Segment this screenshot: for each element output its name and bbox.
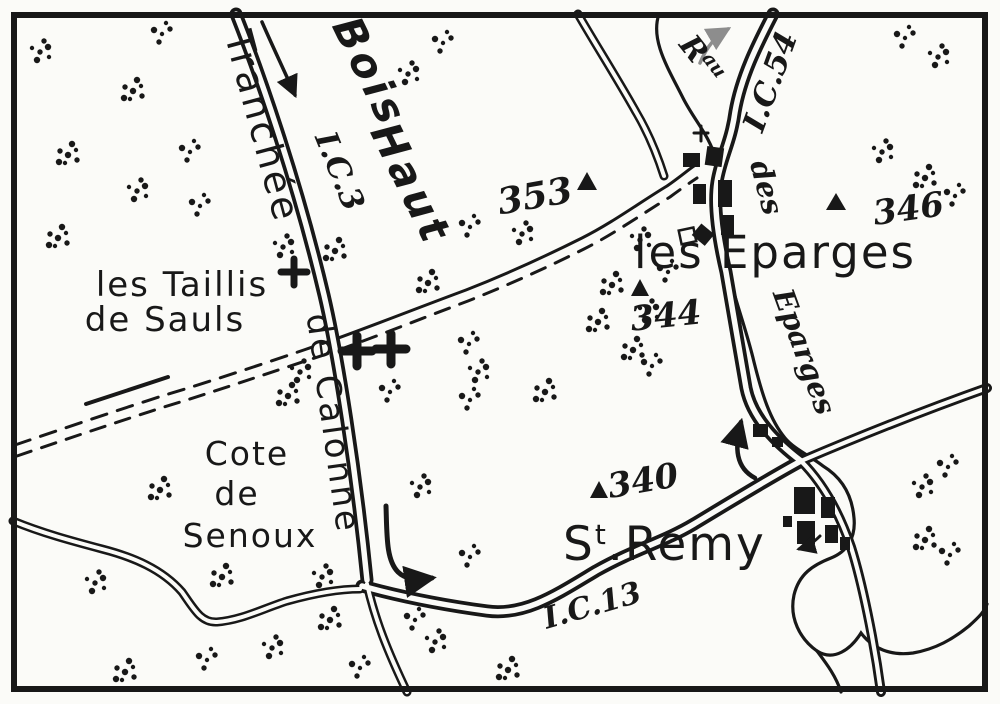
tree-dot [955,547,960,552]
tree-dot [601,278,606,283]
tree-dot [209,647,213,651]
tree-dot [436,628,441,633]
tree-dot [472,387,476,391]
tree-dot [540,398,544,402]
tree-dot [273,241,277,245]
label-344: 344 [628,292,703,339]
tree-dot [922,175,928,181]
tree-dot [442,645,446,649]
tree-dot [409,60,414,65]
tree-dot [134,188,139,193]
tree-dot [604,324,609,329]
tree-dot [607,291,611,295]
tree-dot [409,625,414,630]
tree-dot [471,331,475,335]
tree-dot [228,579,233,584]
tree-dot [134,77,140,83]
tree-dot [318,624,324,630]
tree-dot [448,35,453,40]
tree-dot [942,472,947,477]
tree-dot [646,371,651,376]
tree-dot [219,574,225,580]
tree-dot [113,676,119,682]
tree-dot [879,149,884,154]
tree-dot [609,282,615,288]
tree-dot [534,385,539,390]
tree-dot [127,185,131,189]
tree-dot [932,62,938,68]
tree-dot [613,271,619,277]
st-remy-sup-t: t [595,518,608,551]
tree-dot [139,93,144,98]
tree-dot [341,253,346,258]
tree-dot [100,575,106,581]
tree-dot [336,237,342,243]
tree-dot [621,354,627,360]
tree-dot [928,51,932,55]
tree-dot [546,378,552,384]
st-remy-s: S [563,517,595,572]
tree-dot [423,289,427,293]
tree-dot [654,353,658,357]
tree-dot [952,542,956,546]
paper-background [0,0,1000,704]
tree-dot [294,398,299,403]
tree-dot [74,157,79,162]
tree-dot [284,233,289,238]
tree-dot [953,194,957,198]
tree-dot [69,141,75,147]
tree-dot [467,342,471,346]
tree-dot [907,25,911,29]
tree-dot [144,194,148,198]
tree-dot [432,639,437,644]
tree-dot [950,454,954,458]
tree-dot [948,553,952,557]
tree-dot [913,544,919,550]
tree-dot [937,460,943,466]
tree-dot [122,84,127,89]
tree-dot [131,665,135,669]
tree-dot [102,586,106,590]
tree-dot [205,198,210,203]
tree-dot [354,673,359,678]
tree-dot [600,289,606,295]
tree-dot [472,214,476,218]
tree-dot [496,674,502,680]
tree-dot [316,582,322,588]
tree-dot [55,235,61,241]
tree-dot [47,55,51,59]
tree-dot [131,674,136,679]
tree-dot [463,349,468,354]
tree-dot [413,618,417,622]
tree-dot [388,390,392,394]
tree-dot [472,544,476,548]
tree-dot [926,526,932,532]
tree-dot [126,658,132,664]
tree-dot [618,287,623,292]
tree-dot [57,148,62,153]
tree-dot [519,231,524,236]
tree-dot [63,161,67,165]
tree-dot [273,634,278,639]
tree-dot [139,84,143,88]
label-les-eparges: les Eparges [634,226,916,279]
tree-dot [459,550,465,556]
tree-dot [887,144,893,150]
tree-dot [657,358,662,363]
tree-dot [395,384,400,389]
tree-dot [327,617,333,623]
tree-dot [445,30,449,34]
tree-dot [114,665,119,670]
tree-dot [288,239,294,245]
tree-dot [410,481,414,485]
tree-dot [279,651,283,655]
tree-dot [201,665,206,670]
tree-dot [166,483,170,487]
st-remy-name: Remy [625,517,766,572]
tree-dot [167,26,172,31]
tree-dot [628,356,632,360]
tree-dot [497,663,502,668]
tree-dot [464,405,469,410]
tree-dot [379,385,385,391]
tree-dot [384,397,389,402]
tree-dot [512,228,516,232]
eparges-map: Tranchée de Calonne I.C.3 Bois Haut les … [0,0,1000,704]
tree-dot [92,580,97,585]
tree-dot [312,571,316,575]
tree-dot [325,626,329,630]
tree-dot [429,269,435,275]
tree-dot [914,533,919,538]
tree-dot [179,145,185,151]
tree-dot [155,496,159,500]
tree-dot [923,473,928,478]
map-page: Tranchée de Calonne I.C.3 Bois Haut les … [0,0,1000,704]
tree-dot [529,237,533,241]
tree-dot [289,382,295,388]
tree-dot [262,642,266,646]
tree-dot [164,21,168,25]
tree-dot [894,31,900,37]
tree-dot [960,188,965,193]
tree-dot [53,244,57,248]
tree-dot [120,678,124,682]
tree-dot [416,287,422,293]
tree-dot [336,622,341,627]
tree-dot [149,483,154,488]
tree-dot [297,369,302,374]
tree-dot [417,607,421,611]
tree-dot [639,343,643,347]
tree-dot [294,377,300,383]
tree-dot [472,377,478,383]
tree-dot [74,148,78,152]
tree-dot [587,315,592,320]
tree-dot [914,171,919,176]
tree-dot [280,244,285,249]
tree-dot [277,640,283,646]
tree-dot [483,364,489,370]
tree-dot [622,343,627,348]
tree-dot [432,36,438,42]
tree-dot [920,546,924,550]
tree-dot [468,398,472,402]
tree-dot [276,400,282,406]
tree-dot [37,49,42,54]
tree-dot [425,636,429,640]
tree-dot [593,328,597,332]
tree-dot [294,389,298,393]
tree-dot [939,43,944,48]
tree-dot [413,66,419,72]
tree-dot [128,97,132,101]
tree-dot [434,276,438,280]
tree-dot [85,577,89,581]
tree-dot [65,152,71,158]
tree-dot [505,667,511,673]
tree-dot [142,183,148,189]
tree-dot [899,43,904,48]
tree-dot [883,138,888,143]
tree-dot [184,157,189,162]
tree-dot [944,560,949,565]
tree-dot [468,555,472,559]
tree-dot [945,60,949,64]
tree-dot [514,672,519,677]
tree-dot [157,487,163,493]
tree-dot [122,669,128,675]
tree-dot [912,481,916,485]
tree-dot [160,32,164,36]
tree-dot [551,385,555,389]
tree-dot [931,533,935,537]
tree-dot [195,144,200,149]
tree-dot [595,319,601,325]
tree-dot [910,30,915,35]
label-les-taillis: les Taillis [96,265,268,305]
tree-dot [551,394,556,399]
tree-dot [533,396,539,402]
tree-dot [464,232,469,237]
tree-dot [336,613,340,617]
tree-dot [277,389,282,394]
tree-dot [927,479,933,485]
tree-dot [949,201,954,206]
tree-dot [414,492,420,498]
tree-dot [148,494,154,500]
tree-dot [415,77,419,81]
tree-dot [650,364,654,368]
tree-dot [903,36,907,40]
tree-dot [41,38,46,43]
tree-dot [946,465,950,469]
tree-dot [64,240,69,245]
tree-dot [324,244,329,249]
tree-dot [151,27,157,33]
tree-dot [332,248,338,254]
tree-dot [138,177,143,182]
tree-dot [475,219,480,224]
tree-dot [468,225,472,229]
tree-dot [47,231,52,236]
tree-dot [425,479,431,485]
tree-dot [358,666,362,670]
tree-dot [459,393,465,399]
label-de: de [214,474,259,513]
tree-dot [45,44,51,50]
tree-dot [156,39,161,44]
tree-dot [194,211,199,216]
tree-dot [916,492,922,498]
tree-dot [290,250,294,254]
tree-dot [56,159,62,165]
tree-dot [458,337,464,343]
tree-dot [931,171,935,175]
tree-dot [96,569,101,574]
tree-dot [919,484,924,489]
label-senoux: Senoux [183,516,318,555]
tree-dot [437,48,442,53]
tree-dot [630,347,636,353]
tree-dot [202,193,206,197]
tree-dot [944,189,950,195]
tree-dot [290,366,294,370]
tree-dot [349,661,355,667]
tree-dot [586,326,592,332]
tree-dot [365,660,370,665]
tree-dot [266,653,272,659]
tree-dot [926,164,932,170]
tree-dot [953,459,958,464]
tree-dot [503,676,507,680]
tree-dot [434,285,439,290]
tree-dot [475,369,480,374]
tree-dot [943,49,949,55]
tree-dot [166,492,171,497]
tree-dot [210,581,216,587]
tree-dot [59,224,65,230]
tree-dot [509,656,515,662]
tree-dot [130,88,136,94]
tree-dot [523,220,528,225]
tree-dot [323,563,328,568]
tree-dot [475,549,480,554]
tree-dot [420,612,425,617]
tree-dot [405,71,410,76]
tree-dot [223,563,229,569]
tree-dot [34,57,40,63]
tree-dot [527,226,533,232]
tree-dot [889,155,893,159]
label-de-sauls: de Sauls [85,300,245,340]
tree-dot [417,276,422,281]
tree-dot [327,569,333,575]
tree-dot [319,574,324,579]
tree-dot [427,490,431,494]
tree-dot [468,366,472,370]
st-remy-dot: . [608,517,625,572]
tree-dot [417,484,422,489]
tree-dot [441,41,445,45]
tree-dot [198,204,202,208]
tree-dot [604,315,608,319]
tree-dot [542,389,548,395]
tree-dot [516,239,522,245]
tree-dot [404,613,410,619]
tree-dot [421,473,426,478]
tree-dot [599,308,605,314]
tree-dot [329,580,333,584]
tree-dot [64,231,68,235]
tree-dot [939,548,945,554]
tree-dot [876,157,882,163]
tree-dot [475,392,480,397]
tree-dot [89,588,95,594]
tree-dot [639,352,644,357]
tree-dot [429,647,435,653]
tree-dot [189,199,195,205]
tree-dot [228,570,232,574]
tree-dot [440,634,446,640]
tree-dot [922,537,928,543]
tree-dot [192,139,196,143]
tree-dot [131,196,137,202]
tree-dot [872,146,876,150]
tree-dot [929,490,933,494]
tree-dot [46,242,52,248]
label-cote: Cote [205,434,289,473]
tree-dot [205,658,209,662]
tree-dot [618,278,622,282]
label-st-remy: St.Remy [563,517,766,572]
tree-dot [212,652,217,657]
tree-dot [188,150,192,154]
tree-dot [425,280,431,286]
tree-dot [121,95,127,101]
tree-dot [211,570,216,575]
tree-dot [285,393,291,399]
tree-dot [957,183,961,187]
tree-dot [319,613,324,618]
tree-dot [514,663,518,667]
tree-dot [217,583,221,587]
tree-dot [323,255,329,261]
tree-dot [479,358,484,363]
tree-dot [341,244,345,248]
tree-dot [464,562,469,567]
tree-dot [641,359,647,365]
tree-dot [283,402,287,406]
tree-dot [269,645,274,650]
tree-dot [392,379,396,383]
tree-dot [459,220,465,226]
tree-dot [931,542,936,547]
tree-dot [30,46,34,50]
tree-dot [362,655,366,659]
tree-dot [398,68,402,72]
tree-dot [485,375,489,379]
tree-dot [935,54,940,59]
tree-dot [330,257,334,261]
tree-dot [277,252,283,258]
tree-dot [474,336,479,341]
tree-dot [331,606,337,612]
tree-dot [196,653,202,659]
